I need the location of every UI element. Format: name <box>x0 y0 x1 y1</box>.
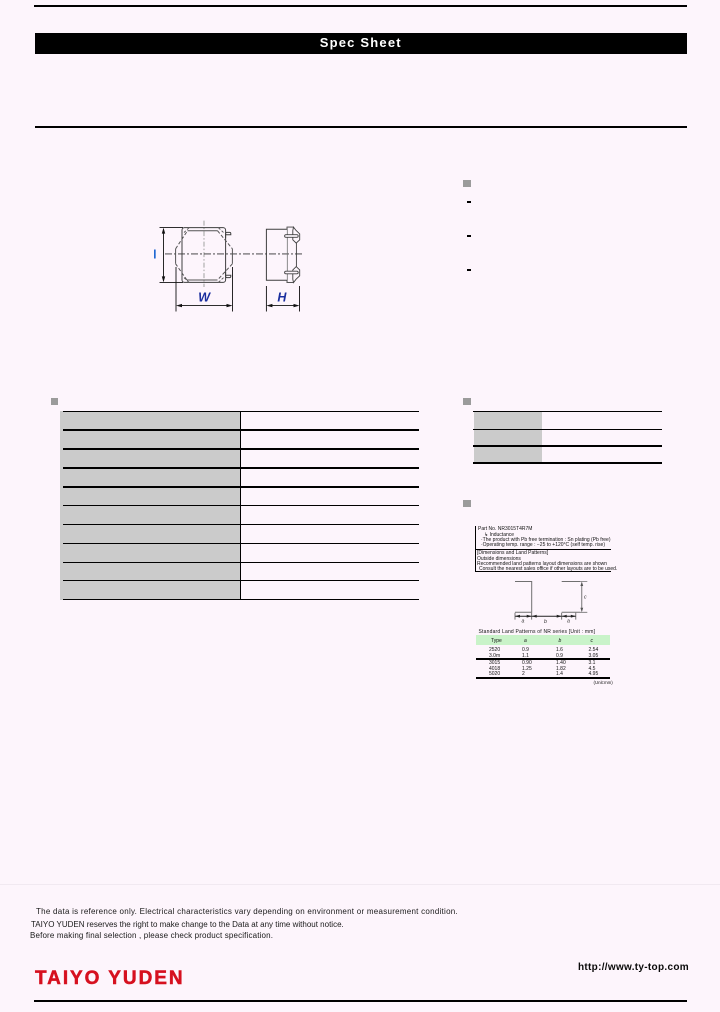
svg-text:b: b <box>544 619 547 625</box>
svg-text:a: a <box>522 619 525 625</box>
svg-text:c: c <box>584 595 587 601</box>
svg-text:W: W <box>198 291 211 305</box>
svg-text:a: a <box>567 619 570 625</box>
svg-text:l: l <box>153 249 156 261</box>
svg-text:H: H <box>277 291 287 305</box>
